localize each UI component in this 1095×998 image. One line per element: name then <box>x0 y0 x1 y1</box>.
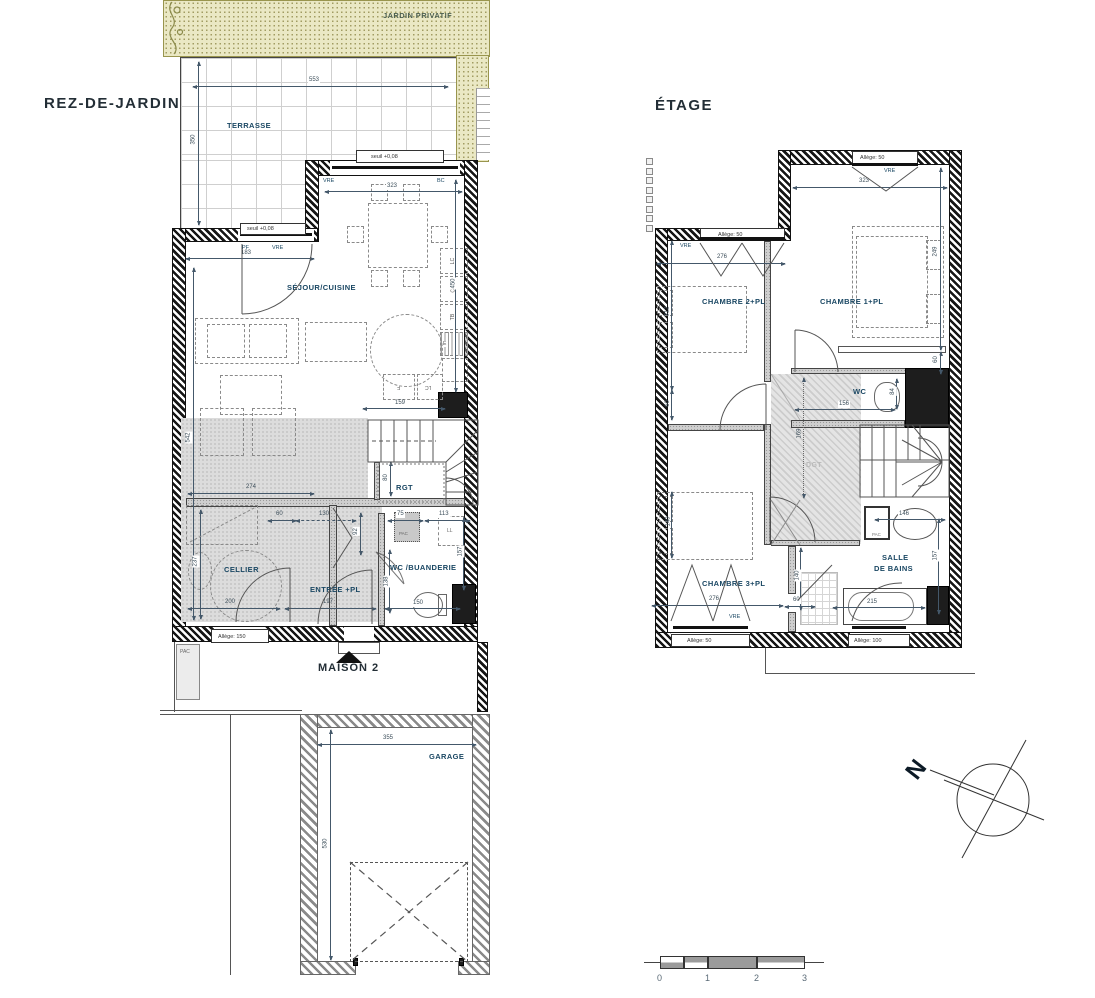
duct-box: PAC <box>864 506 890 540</box>
chair <box>347 226 364 243</box>
chair <box>371 270 388 287</box>
sejour-label: SÉJOUR/CUISINE <box>287 283 356 292</box>
dim-130: 130 <box>318 511 330 518</box>
dim-150: 150 <box>412 600 424 607</box>
armchair <box>252 408 296 456</box>
kitchen-sink: E <box>440 332 468 356</box>
dim-line <box>186 258 314 259</box>
dim-line <box>318 744 476 745</box>
dim-169: 169 <box>797 427 804 439</box>
dim-60-part: 60 <box>792 597 801 604</box>
compass-icon <box>930 740 1044 858</box>
neighbor-wall-strip <box>476 88 490 160</box>
dim-350: 350 <box>191 133 198 145</box>
ll-label: LL <box>447 528 453 534</box>
cellier-label: CELLIER <box>224 565 259 574</box>
wc-buanderie-label: WC /BUANDERIE <box>390 563 456 572</box>
boundary-line <box>230 714 231 975</box>
dim-183: 183 <box>240 250 252 257</box>
scalebar-0: 0 <box>657 973 662 983</box>
seuil-box: seuil +0,08 <box>356 150 444 163</box>
railing-square <box>646 215 653 222</box>
vre-label-ch3: VRE <box>729 614 740 620</box>
dim-line <box>940 352 941 374</box>
dim-450: 450 <box>451 277 458 289</box>
dim-323-et: 323 <box>858 178 870 185</box>
pac-label: PAC <box>399 531 408 537</box>
seuil-box-2: seuil +0,08 <box>240 223 306 235</box>
garage-wall <box>300 961 356 975</box>
dim-274: 274 <box>245 484 257 491</box>
round-table <box>370 314 443 387</box>
terrasse-tiles-upper <box>180 57 456 160</box>
window-glass-bar <box>332 166 458 169</box>
dim-line <box>325 191 462 192</box>
dim-249: 249 <box>933 245 940 257</box>
dim-140-bed: 140 <box>666 515 673 527</box>
pac-outdoor-label: PAC <box>180 649 190 655</box>
window-bar <box>700 237 785 240</box>
dim-line <box>390 462 391 496</box>
dim-312: 312 <box>665 305 672 317</box>
scalebar-2: 2 <box>754 973 759 983</box>
dim-line <box>200 510 201 619</box>
dim-113: 113 <box>438 511 450 518</box>
kitchen-unit: TB <box>440 304 468 330</box>
scalebar-segment <box>757 956 805 969</box>
partition <box>374 462 380 500</box>
dim-80: 80 <box>383 473 390 482</box>
allege-50-label: Allège: 50 <box>860 155 884 161</box>
ch1-label: CHAMBRE 1+PL <box>820 297 883 306</box>
seuil-label: seuil +0,08 <box>371 154 398 160</box>
dim-75: 75 <box>396 511 405 518</box>
dim-323: 323 <box>386 183 398 190</box>
dim-line <box>385 608 460 609</box>
dim-60: 60 <box>275 511 284 518</box>
dim-line <box>188 608 280 609</box>
side-table <box>305 322 367 362</box>
chair <box>403 270 420 287</box>
railing-square <box>646 206 653 213</box>
railing-square <box>646 225 653 232</box>
entrance-door-gap <box>344 627 374 641</box>
dim-138: 138 <box>384 575 391 587</box>
chair <box>403 184 420 201</box>
pac-duct-label: PAC <box>872 532 881 538</box>
dim-line <box>833 607 925 608</box>
garage-wall <box>300 714 318 975</box>
dim-line <box>285 608 376 609</box>
partition <box>791 420 905 428</box>
railing-square <box>646 196 653 203</box>
armchair <box>200 408 244 456</box>
closet-strip <box>838 346 946 353</box>
kitchen-lc2-label: LC <box>425 384 431 390</box>
dim-84: 84 <box>890 387 897 396</box>
sdb-label-1: SALLE <box>882 553 909 562</box>
dim-line <box>330 730 331 960</box>
maison-label: MAISON 2 <box>318 662 379 674</box>
sofa-cushion <box>249 324 287 358</box>
kitchen-e-label: E <box>443 341 446 347</box>
dim-line <box>793 187 947 188</box>
partition <box>668 424 764 431</box>
allege-100-label: Allège: 100 <box>854 638 882 644</box>
dim-line <box>795 409 895 410</box>
partition <box>764 424 771 545</box>
dim-line <box>296 520 356 521</box>
garage-wall <box>472 714 490 975</box>
stairs-rdj <box>368 420 478 505</box>
dim-276: 276 <box>716 254 728 261</box>
dim-157: 157 <box>458 545 465 557</box>
dim-276-ch3: 276 <box>708 596 720 603</box>
dim-140: 140 <box>795 569 802 581</box>
wc-label: WC <box>853 387 866 396</box>
pillow <box>926 294 941 324</box>
boundary-line <box>174 642 175 712</box>
rdj-title: REZ-DE-JARDIN <box>44 95 180 112</box>
dgt-label: DGT <box>806 462 822 469</box>
dim-200: 200 <box>224 599 236 606</box>
allege-box: Allège: 150 <box>211 629 269 643</box>
scalebar-segment <box>708 956 757 969</box>
pac-outdoor-unit: PAC <box>176 644 200 700</box>
sofa-cushion <box>207 324 245 358</box>
dim-line <box>268 520 296 521</box>
dim-line <box>875 519 945 520</box>
vre-label-ch1: VRE <box>884 168 895 174</box>
etage-title: ÉTAGE <box>655 97 713 114</box>
dim-line <box>198 62 199 225</box>
dim-line <box>188 493 314 494</box>
duct-block <box>905 368 949 428</box>
dim-line <box>940 168 941 350</box>
railing-square <box>646 177 653 184</box>
dim-215: 215 <box>866 599 878 606</box>
boundary-line <box>160 714 302 715</box>
boundary-line <box>160 710 302 711</box>
dining-table <box>368 203 428 268</box>
dim-line <box>785 606 815 607</box>
dim-156: 156 <box>838 401 850 408</box>
toilet-tank <box>438 594 447 616</box>
vre-label-2: VRE <box>272 245 283 251</box>
stairs-etage <box>860 425 949 497</box>
dim-237: 237 <box>193 555 200 567</box>
dim-60-ch1: 60 <box>933 355 940 364</box>
chair <box>431 226 448 243</box>
dim-159: 159 <box>394 400 406 407</box>
allege-box: Allège: 50 <box>671 634 750 647</box>
dim-line <box>193 86 448 87</box>
allege-150-label: Allège: 150 <box>218 634 246 640</box>
railing-square <box>646 168 653 175</box>
north-label: N <box>900 755 933 786</box>
water-heater <box>210 550 282 622</box>
garage-label: GARAGE <box>429 752 464 761</box>
wall <box>949 150 962 648</box>
wall <box>477 642 488 712</box>
sdb-label-2: DE BAINS <box>874 564 913 573</box>
dim-157-sdb: 157 <box>933 549 940 561</box>
dim-530: 530 <box>323 837 330 849</box>
scalebar-1: 1 <box>705 973 710 983</box>
dim-197: 197 <box>322 599 334 606</box>
window-bar <box>673 626 748 629</box>
railing-square <box>646 187 653 194</box>
dim-line <box>363 408 445 409</box>
scalebar-segment <box>684 956 708 969</box>
dim-553: 553 <box>308 77 320 84</box>
vre-label: VRE <box>323 178 334 184</box>
terrasse-label: TERRASSE <box>227 121 271 130</box>
kitchen-unit: LC <box>440 248 468 274</box>
seuil-label-2: seuil +0,08 <box>247 226 274 232</box>
car-space <box>350 862 468 962</box>
entree-label: ENTRÉE +PL <box>310 585 360 594</box>
dim-146: 146 <box>898 511 910 518</box>
rgt-label: RGT <box>396 483 413 492</box>
scalebar-3: 3 <box>802 973 807 983</box>
bc-label: BC <box>437 178 445 184</box>
jardin-privatif-band <box>163 0 490 57</box>
scalebar-segment <box>660 956 684 969</box>
dim-542: 542 <box>186 431 193 443</box>
dim-92: 92 <box>353 527 360 536</box>
mattress <box>856 236 928 328</box>
entrance-step <box>338 642 380 654</box>
allege-50-label-3: Allège: 50 <box>687 638 711 644</box>
railing-square <box>646 158 653 165</box>
allege-box: Allège: 100 <box>848 634 910 647</box>
dim-line <box>360 513 361 555</box>
dim-line <box>388 520 423 521</box>
dim-line <box>938 519 939 614</box>
shower-floor <box>800 572 838 625</box>
cellier-counter <box>186 505 258 545</box>
partition <box>788 612 796 632</box>
ch2-label: CHAMBRE 2+PL <box>702 297 765 306</box>
window-bar <box>852 163 918 166</box>
boundary-line <box>765 648 766 673</box>
boundary-line <box>765 673 975 674</box>
dgt-zone <box>771 374 861 544</box>
floorplan-canvas: JARDIN PRIVATIF TERRASSE REZ-DE-JARDIN É… <box>0 0 1095 998</box>
window-bar <box>852 626 906 629</box>
dim-355: 355 <box>382 735 394 742</box>
garage-wall <box>300 714 490 728</box>
partition <box>771 540 860 546</box>
ch3-label: CHAMBRE 3+PL <box>702 579 765 588</box>
dim-line <box>652 605 783 606</box>
vre-label-ch2: VRE <box>680 243 691 249</box>
dim-60-ch2: 60 <box>665 399 672 408</box>
jardin-label: JARDIN PRIVATIF <box>383 11 452 20</box>
dim-line <box>657 263 785 264</box>
